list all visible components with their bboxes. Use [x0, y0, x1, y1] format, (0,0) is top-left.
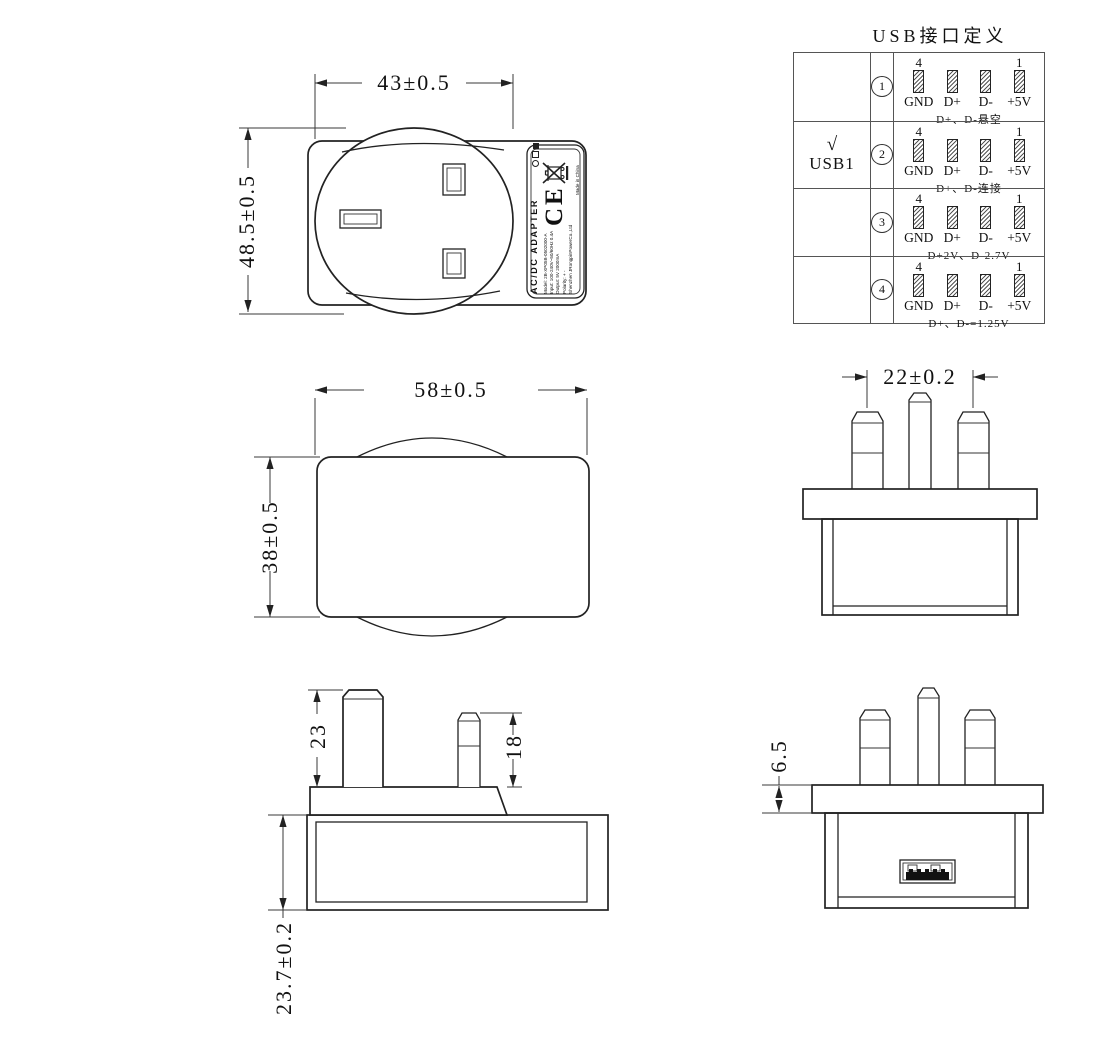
- view-body-top: 58±0.5 38±0.5: [254, 377, 589, 636]
- pin-symbol: [980, 139, 991, 162]
- made-in-label: Made in China: [575, 165, 580, 195]
- pin-symbol: [947, 70, 958, 93]
- dim-body-height: 38±0.5: [257, 500, 282, 574]
- pin-earth: [909, 393, 931, 489]
- pin-symbol: [1014, 139, 1025, 162]
- table-cell-pins-1: 4GND D+ D- 1+5V D+、D-悬空: [894, 53, 1044, 121]
- pin-symbol: [913, 139, 924, 162]
- circled-number-2: 2: [871, 144, 893, 165]
- view-pins-front: 22±0.2: [803, 364, 1037, 615]
- table-cell-index-4: 4: [871, 256, 894, 324]
- table-cell-select-1: [794, 53, 871, 121]
- pin-right2: [965, 710, 995, 785]
- pin-symbol: [1014, 70, 1025, 93]
- pin-symbol: [980, 274, 991, 297]
- table-cell-select-3: [794, 188, 871, 256]
- dim-earth-pin-length: 23: [305, 723, 330, 749]
- pin-right: [958, 412, 989, 489]
- usb-table-title: USB接口定义: [820, 22, 1060, 48]
- adapter-label: AC/DC ADAPTER Model: 2B-XP05B-0502000-A …: [527, 145, 584, 298]
- pin-line-side: [458, 713, 480, 787]
- dim-flange-thickness: 6.5: [766, 739, 791, 773]
- pin-earth2: [918, 688, 939, 785]
- label-line-manufacturer: Shenzhen JRongpinPowerCo.,Ltd: [568, 224, 574, 294]
- pin-symbol: [947, 206, 958, 229]
- pin-symbol: [980, 206, 991, 229]
- circle-cert-icon: [532, 160, 539, 167]
- filled-square-cert-icon: [533, 143, 539, 149]
- usb-port: [900, 860, 955, 883]
- table-cell-select-4: [794, 256, 871, 324]
- pin-hole-earth: [340, 210, 381, 228]
- dim-face-height: 48.5±0.5: [234, 174, 259, 268]
- pin-symbol: [947, 274, 958, 297]
- pin-hole-top: [443, 164, 465, 195]
- circled-number-3: 3: [871, 212, 893, 233]
- pin-symbol: [947, 139, 958, 162]
- pin-mode-note-4: D+、D-=1.25V: [928, 315, 1009, 331]
- circled-number-1: 1: [871, 76, 893, 97]
- port-label: USB1: [809, 154, 855, 174]
- pin-left: [852, 412, 883, 489]
- pin-left2: [860, 710, 890, 785]
- dim-pin-spacing: 22±0.2: [883, 364, 957, 389]
- pin-symbol: [1014, 274, 1025, 297]
- certification-icons: [532, 143, 539, 167]
- table-cell-select-2: √ USB1: [794, 121, 871, 189]
- dim-line-pin-length: 18: [501, 734, 526, 760]
- pin-earth-side: [343, 690, 383, 787]
- ce-mark: CE: [541, 185, 569, 226]
- technical-drawing-sheet: 43±0.5 48.5±0.5 58±0.5 38±0.5: [0, 0, 1100, 1044]
- usb-definition-table: 1 4GND D+ D- 1+5V D+、D-悬空 √ USB1 2 4GND …: [793, 52, 1045, 324]
- dim-face-width: 43±0.5: [377, 70, 451, 95]
- square-cert-icon: [532, 151, 539, 158]
- dim-body-width: 58±0.5: [414, 377, 488, 402]
- product-name: AC/DC ADAPTER: [529, 199, 539, 294]
- circled-number-4: 4: [871, 279, 893, 300]
- table-cell-index-3: 3: [871, 188, 894, 256]
- dim-body-depth: 23.7±0.2: [271, 921, 296, 1015]
- view-usb-front: 6.5: [762, 688, 1043, 908]
- pin-symbol: [913, 70, 924, 93]
- pin-symbol: [1014, 206, 1025, 229]
- pin-symbol: [913, 274, 924, 297]
- table-cell-pins-4: 4GND D+ D- 1+5V D+、D-=1.25V: [894, 256, 1044, 324]
- table-cell-index-1: 1: [871, 53, 894, 121]
- table-cell-pins-3: 4GND D+ D- 1+5V D+2V、D-2.7V: [894, 188, 1044, 256]
- label-spec-lines: Model: 2B-XP05B-0502000-A Input: 100-240…: [543, 224, 574, 294]
- pin-symbol: [980, 70, 991, 93]
- table-cell-pins-2: 4GND D+ D- 1+5V D+、D-连接: [894, 121, 1044, 189]
- pin-symbol: [913, 206, 924, 229]
- checkmark: √: [827, 135, 837, 154]
- view-side: 23 18 23.7±0.2: [268, 690, 608, 1015]
- table-cell-index-2: 2: [871, 121, 894, 189]
